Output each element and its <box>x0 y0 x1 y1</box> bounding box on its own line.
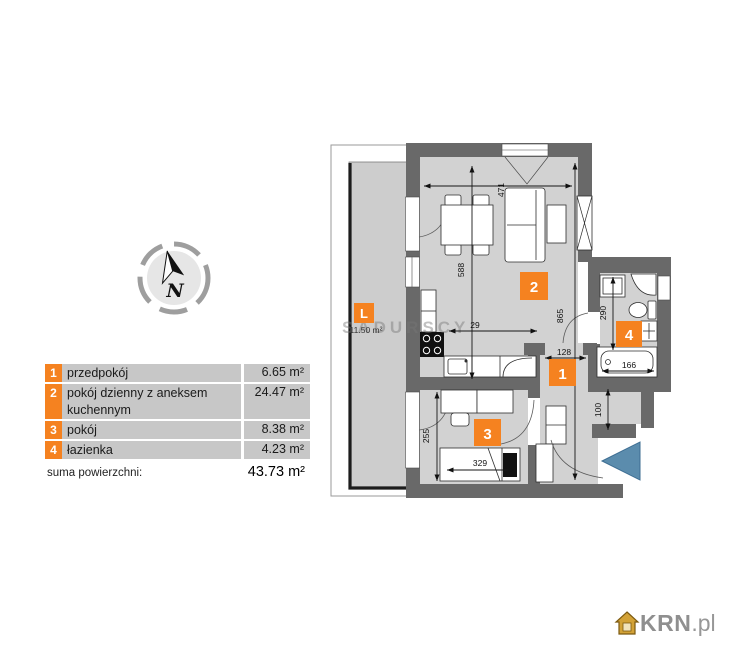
floor-plan: SADURSCY 471 588 865 29 128 290 166 255 … <box>300 120 700 515</box>
dim-label: 471 <box>496 183 506 197</box>
room-number-badge: 1 <box>45 364 62 382</box>
dim-label: 255 <box>421 429 431 443</box>
room2-badge-label: 2 <box>530 279 538 296</box>
room-name: pokój <box>62 421 241 439</box>
room-number-badge: 2 <box>45 384 62 419</box>
room1-badge-label: 1 <box>558 366 566 383</box>
room4-badge-label: 4 <box>625 327 634 344</box>
left-window <box>406 257 420 287</box>
dim-label: 128 <box>557 347 571 357</box>
compass-north-letter: N <box>165 280 184 302</box>
hall-cabinet <box>536 444 553 482</box>
house-icon <box>614 609 640 637</box>
room-name: pokój dzienny z aneksem kuchennym <box>62 384 241 419</box>
balcony-door <box>406 197 420 251</box>
entrance-arrow-icon <box>602 442 640 480</box>
dim-label: 290 <box>598 306 608 320</box>
legend-row: 1 przedpokój 6.65 m² <box>45 364 310 382</box>
room-number-badge: 4 <box>45 441 62 459</box>
legend-row: 2 pokój dzienny z aneksem kuchennym 24.4… <box>45 384 310 419</box>
sofa <box>505 188 545 262</box>
room-name: łazienka <box>62 441 241 459</box>
room-legend: 1 przedpokój 6.65 m² 2 pokój dzienny z a… <box>45 364 310 480</box>
dim-label: 29 <box>470 320 480 330</box>
dim-label: 865 <box>555 309 565 323</box>
logo-tld: .pl <box>691 610 715 637</box>
bathroom-window <box>658 276 670 300</box>
balcony-badge-label: L <box>360 306 368 321</box>
toilet <box>629 303 647 318</box>
side-table <box>547 205 566 243</box>
krn-logo: KRN.pl <box>614 609 716 637</box>
dim-label: 329 <box>473 458 487 468</box>
bedroom-balcony-door <box>406 392 420 468</box>
niche-floor <box>598 390 641 424</box>
compass-rose: N <box>134 238 214 318</box>
room-name: przedpokój <box>62 364 241 382</box>
legend-row: 3 pokój 8.38 m² <box>45 421 310 439</box>
legend-total-row: suma powierzchni: 43.73 m² <box>45 464 310 480</box>
chair <box>451 413 469 426</box>
dim-label: 166 <box>622 360 636 370</box>
room-number-badge: 3 <box>45 421 62 439</box>
logo-text: KRN <box>640 610 691 637</box>
pillow <box>503 453 517 477</box>
dim-label: 100 <box>593 403 603 417</box>
legend-row: 4 łazienka 4.23 m² <box>45 441 310 459</box>
balcony-area-label: 11.50 m² <box>350 325 383 335</box>
dim-label: 588 <box>456 263 466 277</box>
room3-badge-label: 3 <box>483 426 491 443</box>
floorplan-page: 1 przedpokój 6.65 m² 2 pokój dzienny z a… <box>0 0 740 653</box>
total-label: suma powierzchni: <box>47 467 142 479</box>
